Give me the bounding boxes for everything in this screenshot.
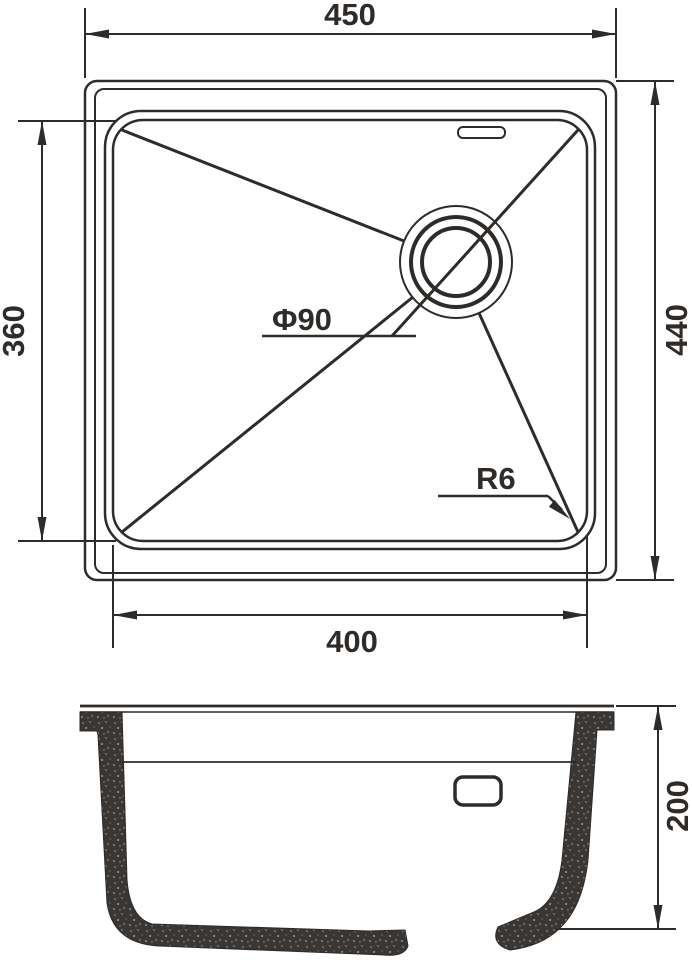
arrowhead-top [651, 81, 660, 105]
arrowhead-right [563, 611, 587, 620]
arrowhead-right [592, 30, 616, 39]
rim-edge-rect [95, 89, 606, 573]
dim-400: 400 [113, 535, 587, 659]
dim-360-label: 360 [0, 305, 31, 357]
drain-inner-circle [422, 228, 490, 296]
right-wall-section [496, 712, 614, 950]
arrowhead-top [38, 121, 47, 145]
label-drain-diameter: Φ90 [262, 302, 416, 337]
dim-400-label: 400 [326, 624, 378, 659]
crease-bottom-right [479, 313, 578, 532]
dim-360: 360 [0, 121, 116, 541]
crease-bottom-left [122, 297, 413, 532]
overflow-slot-top [458, 127, 505, 138]
bowl-outer-rect [105, 111, 595, 549]
corner-radius-label: R6 [476, 461, 516, 496]
dim-440: 440 [616, 81, 692, 580]
sink-technical-drawing: 450 360 440 400 [0, 0, 692, 960]
drain-circles [400, 206, 512, 318]
bowl-inner-rect [113, 120, 587, 541]
sink-top-outline [85, 81, 616, 580]
drain-outer-circle [400, 206, 512, 318]
dim-440-label: 440 [659, 304, 692, 356]
dim-200-label: 200 [660, 780, 692, 832]
outer-edge-rect [85, 81, 616, 580]
top-view: 450 360 440 400 [0, 0, 692, 659]
arrowhead-bottom [651, 556, 660, 580]
side-view: 200 [80, 706, 692, 955]
dim-450-label: 450 [324, 0, 376, 32]
arrowhead-bottom [654, 905, 663, 929]
dim-450: 450 [85, 0, 616, 78]
drawing-svg: 450 360 440 400 [0, 0, 692, 960]
arrowhead-left [113, 611, 137, 620]
drain-diameter-label: Φ90 [272, 302, 332, 337]
overflow-slot-side [455, 777, 501, 805]
arrowhead-top [654, 706, 663, 730]
drain-middle-circle [411, 217, 501, 307]
left-wall-section [80, 712, 408, 955]
arrowhead-bottom [38, 517, 47, 541]
crease-top-left [122, 130, 404, 241]
arrowhead-left [85, 30, 109, 39]
